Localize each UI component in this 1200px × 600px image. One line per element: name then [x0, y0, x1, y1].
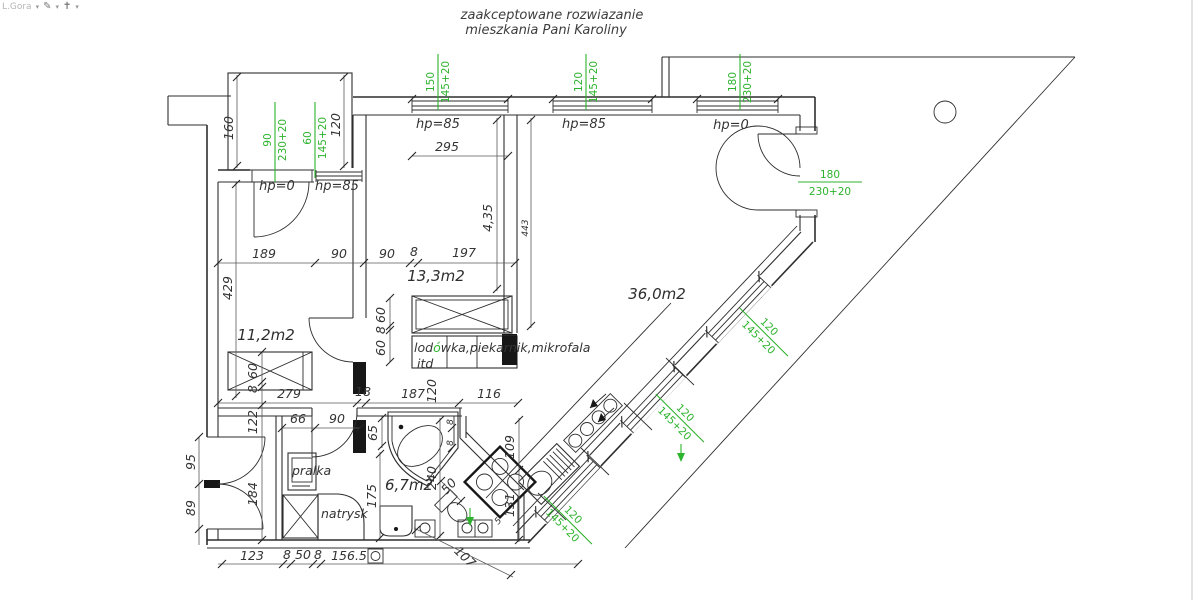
- dim-90b: 90: [379, 246, 395, 261]
- svg-text:120: 120: [573, 72, 585, 92]
- bathtub-tap: [399, 425, 404, 430]
- cad-toolbar: L.Gora▾ ✎▾ ✝▾: [2, 1, 79, 12]
- window-label-diag2: 120 145+20: [646, 385, 713, 452]
- svg-text:150: 150: [425, 72, 437, 92]
- dim-175: 175: [364, 484, 379, 508]
- dim-131: 131: [502, 493, 517, 517]
- dim-107: 107: [451, 543, 479, 570]
- dim-89: 89: [183, 500, 198, 516]
- terrace-column: [934, 101, 956, 123]
- dim-50: 50: [438, 475, 460, 497]
- room-label-bedroom-left: 11,2m2: [237, 326, 295, 344]
- sill-label-window: hp=85: [315, 179, 359, 194]
- appliances-label: lodówka,piekarnik,mikrofala: [414, 340, 590, 355]
- svg-text:60: 60: [302, 131, 314, 144]
- sill-label-door: hp=0: [259, 179, 295, 194]
- washbasin: [380, 506, 412, 536]
- appliances-label-etc: itd: [417, 356, 433, 371]
- dim-197: 197: [452, 245, 476, 260]
- dim-8e: 8: [314, 547, 322, 562]
- dim-8b: 8: [373, 326, 388, 334]
- dim-279: 279: [277, 386, 301, 401]
- room-label-living: 36,0m2: [628, 285, 686, 303]
- dim-8-tub1: 8: [446, 419, 456, 425]
- svg-text:145+20: 145+20: [588, 61, 600, 103]
- window-label-balcony-window: 60 145+20: [302, 102, 329, 178]
- dim-50b: 50: [295, 547, 311, 562]
- chevron-down-icon[interactable]: ▾: [36, 3, 40, 11]
- dim-109: 109: [502, 435, 517, 459]
- shower-label: natrysk: [321, 506, 369, 521]
- dim-156-5: 156.5: [331, 548, 367, 563]
- window-label-diag1: 120 145+20: [730, 299, 797, 366]
- dim-120-balcony: 120: [328, 113, 343, 137]
- door-entry-1: [218, 437, 265, 484]
- dim-60a: 60: [373, 307, 388, 323]
- svg-text:145+20: 145+20: [440, 61, 452, 103]
- dim-65: 65: [365, 425, 380, 441]
- floor-plan-canvas[interactable]: zaakceptowane rozwiazanie mieszkania Pan…: [0, 0, 1200, 600]
- chevron-down-icon[interactable]: ▾: [75, 3, 79, 11]
- dim-8-tub2: 8: [446, 440, 456, 446]
- target-icon[interactable]: ✝: [63, 1, 71, 12]
- washer-label: pralka: [291, 463, 331, 478]
- dim-189: 189: [252, 246, 276, 261]
- dim-66: 66: [290, 411, 306, 426]
- door-room-left: [309, 318, 353, 362]
- dim-429: 429: [220, 276, 235, 300]
- chevron-down-icon[interactable]: ▾: [55, 3, 59, 11]
- sill-label-win2: hp=85: [562, 117, 606, 132]
- hob-circles: [564, 394, 623, 453]
- sill-label-win3: hp=0: [713, 118, 749, 133]
- bath-cabinet: [283, 495, 318, 538]
- dim-60c: 60: [245, 363, 260, 379]
- svg-text:230+20: 230+20: [277, 119, 289, 161]
- kitchen-counter: [486, 226, 797, 526]
- room-label-bath: 6,7m2: [385, 476, 433, 494]
- drawing-title-line2: mieszkania Pani Karoliny: [465, 23, 627, 38]
- dim-160: 160: [221, 116, 236, 140]
- svg-text:180: 180: [727, 72, 739, 92]
- room-label-bedroom-mid: 13,3m2: [407, 267, 465, 285]
- dim-122: 122: [245, 410, 260, 434]
- sill-label-win1: hp=85: [416, 117, 460, 132]
- layer-label[interactable]: L.Gora: [2, 2, 32, 12]
- dim-116: 116: [477, 386, 501, 401]
- kitchen-cabinet: [412, 296, 512, 333]
- dim-123: 123: [240, 548, 264, 563]
- dim-120v: 120: [424, 379, 439, 403]
- dim-8c: 8: [245, 385, 260, 393]
- wardrobe: [228, 352, 312, 390]
- french-door: [716, 126, 817, 217]
- svg-text:230+20: 230+20: [809, 186, 851, 198]
- dim-18: 18: [355, 384, 371, 399]
- cad-viewport[interactable]: L.Gora▾ ✎▾ ✝▾ zaakceptowane rozwiazanie …: [0, 0, 1200, 600]
- svg-text:90: 90: [262, 133, 274, 146]
- dim-8d: 8: [283, 547, 291, 562]
- dim-8a: 8: [410, 244, 418, 259]
- dim-4-35: 4,35: [480, 204, 495, 232]
- svg-text:180: 180: [820, 169, 840, 181]
- balcony-top-right: [662, 57, 1075, 97]
- drawing-title-line1: zaakceptowane rozwiazanie: [460, 8, 644, 23]
- dim-90c: 90: [329, 411, 345, 426]
- svg-text:145+20: 145+20: [317, 117, 329, 159]
- dim-443: 443: [521, 219, 531, 236]
- pen-icon[interactable]: ✎: [43, 1, 51, 12]
- dim-187: 187: [401, 386, 425, 401]
- dim-184: 184: [245, 482, 260, 506]
- terrace-edge: [625, 57, 1075, 548]
- down-arrow-icon-2: [677, 444, 685, 462]
- svg-text:230+20: 230+20: [742, 61, 754, 103]
- dim-90a: 90: [331, 246, 347, 261]
- dim-60b: 60: [373, 340, 388, 356]
- dim-295: 295: [435, 139, 459, 154]
- dim-95: 95: [183, 454, 198, 470]
